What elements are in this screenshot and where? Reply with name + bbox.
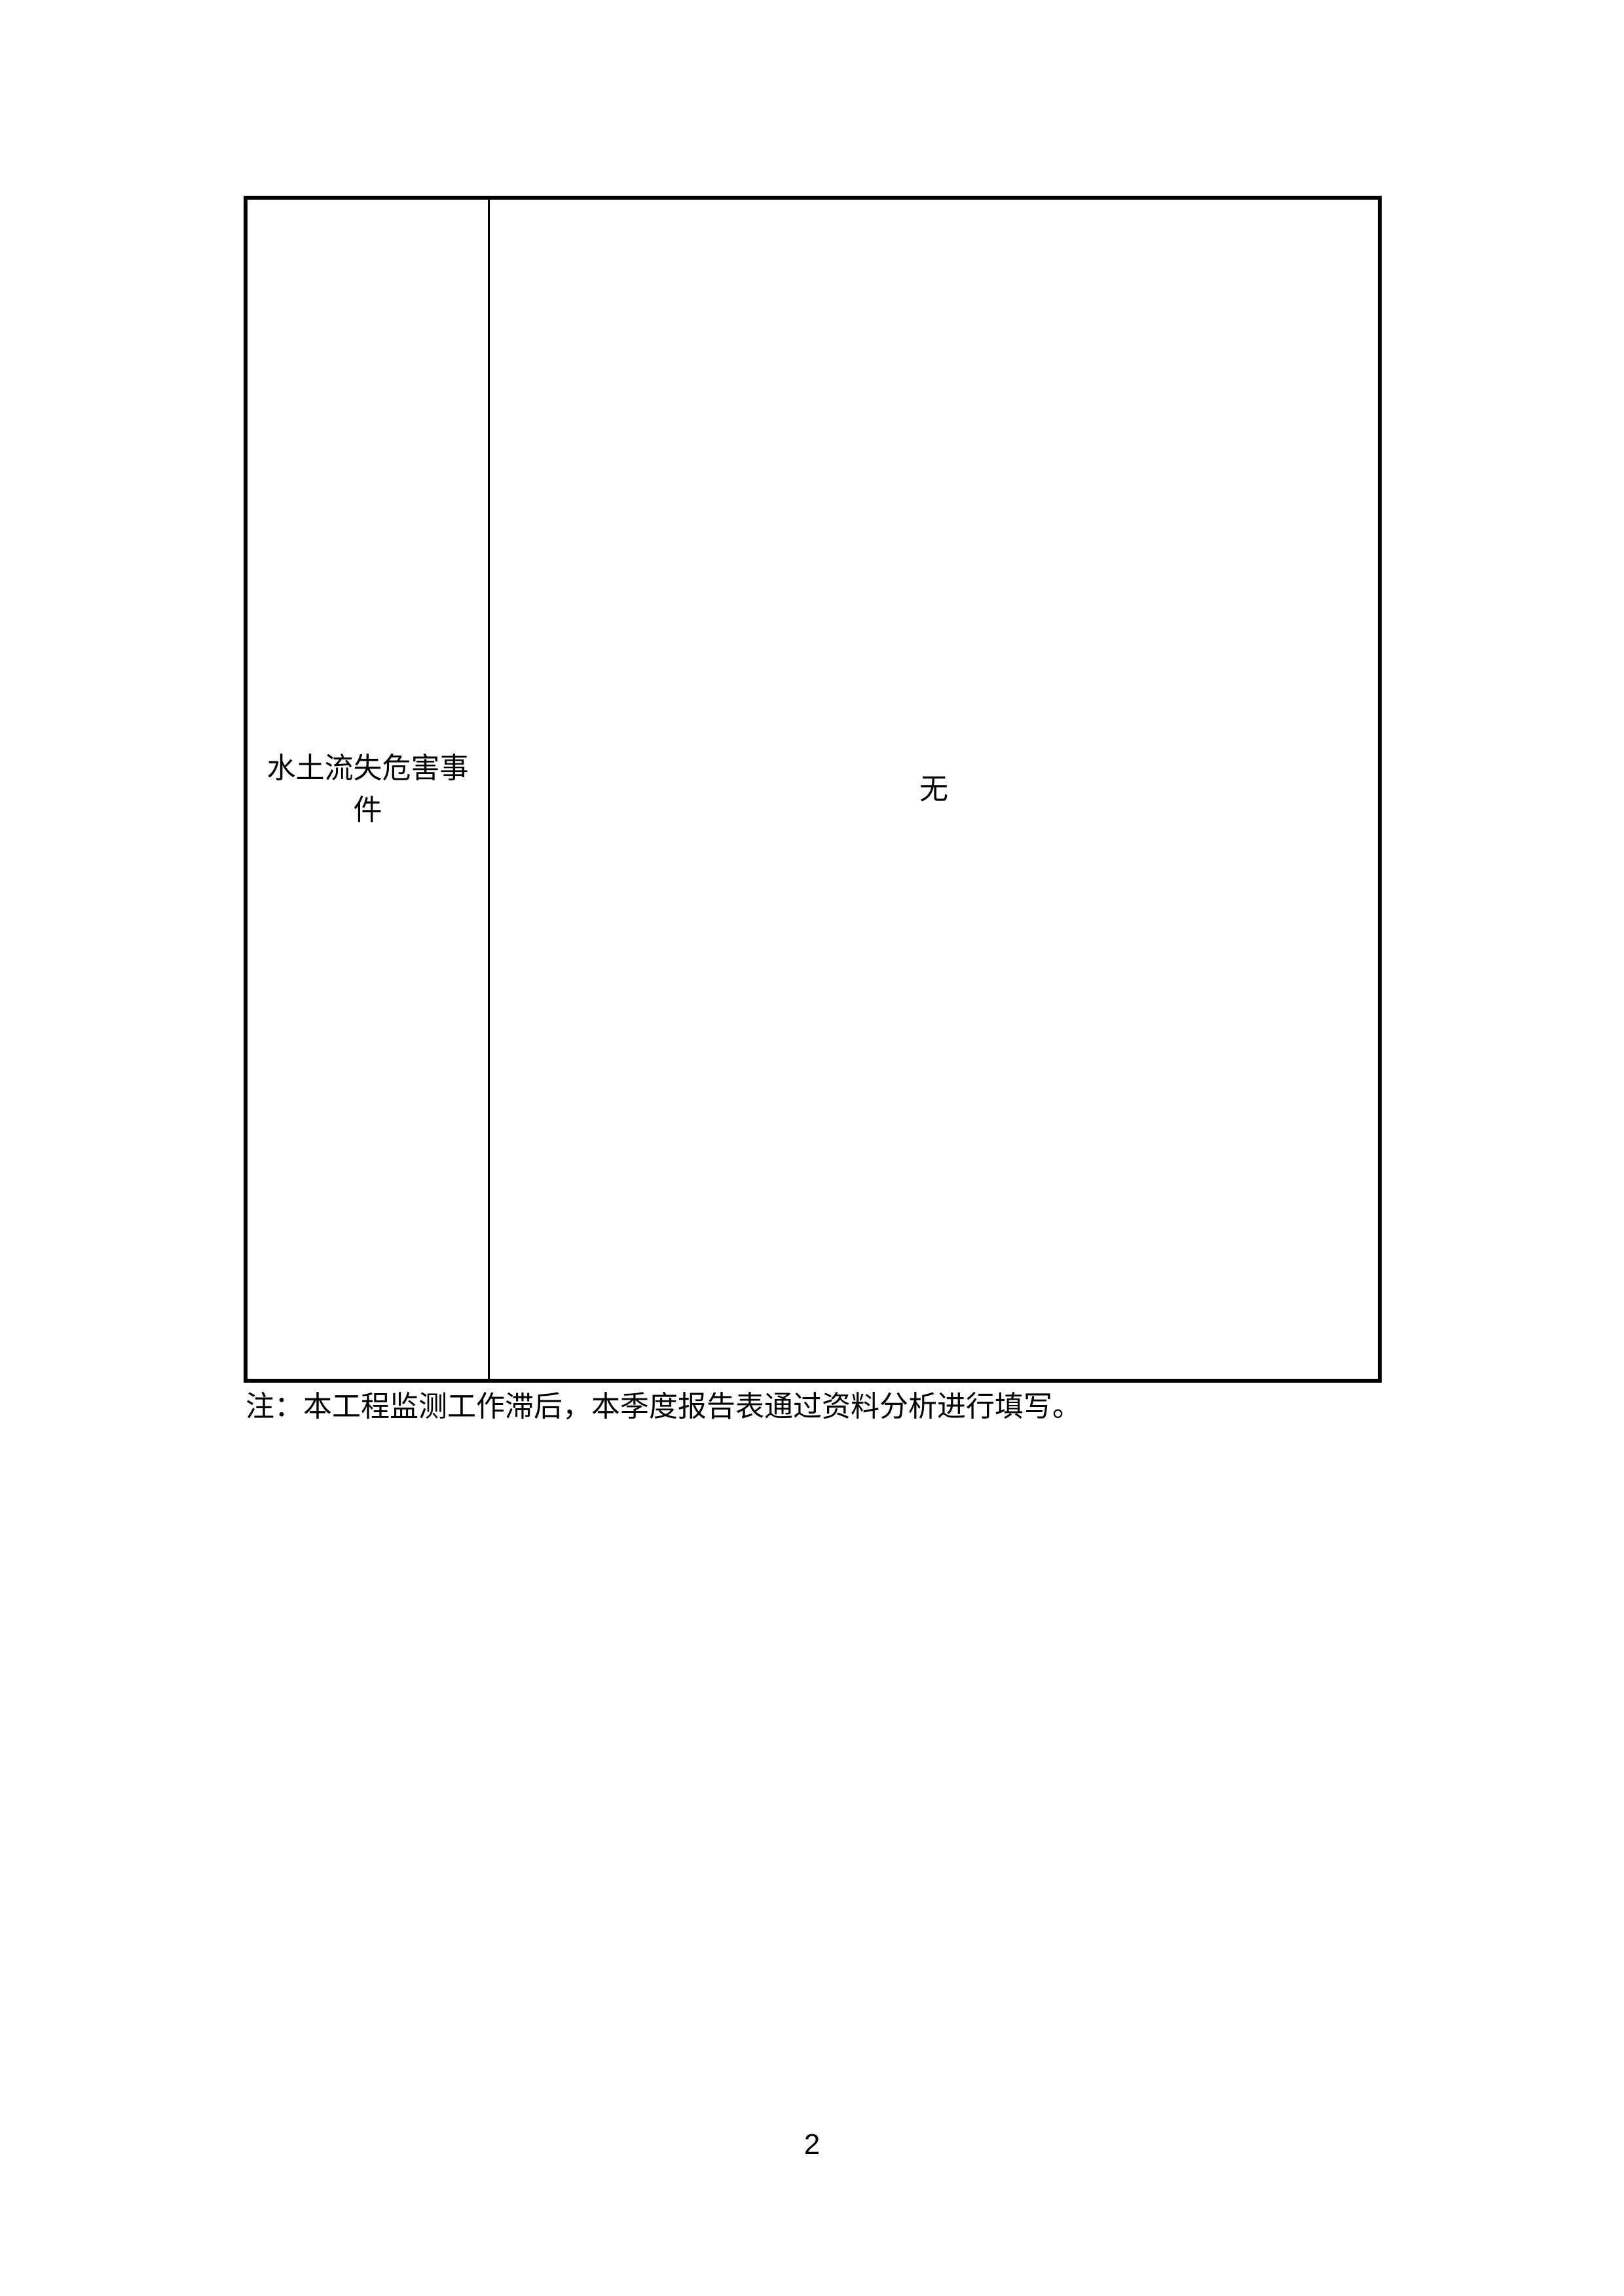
- document-page: 水土流失危害事件 无 注：本工程监测工作滞后，本季度报告表通过资料分析进行填写。…: [0, 0, 1624, 2296]
- table-footnote: 注：本工程监测工作滞后，本季度报告表通过资料分析进行填写。: [246, 1388, 1385, 1426]
- report-table: 水土流失危害事件 无: [244, 196, 1382, 1383]
- table-cell-value-none: 无: [490, 200, 1378, 1379]
- table-cell-label-soil-erosion-hazard-events: 水土流失危害事件: [248, 200, 490, 1379]
- page-number: 2: [0, 2129, 1624, 2160]
